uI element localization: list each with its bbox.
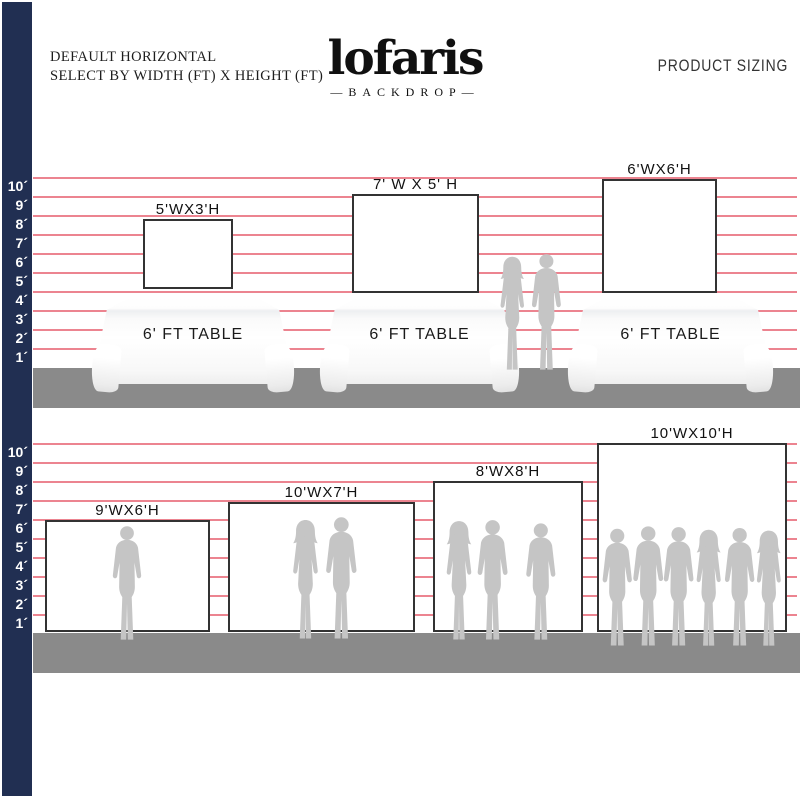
backdrop-size-label: 6'WX6'H xyxy=(602,161,717,178)
ruler-tick-label: 2´ xyxy=(2,329,28,347)
woman-silhouette xyxy=(293,520,318,639)
ruler-tick-label: 7´ xyxy=(2,500,28,518)
ruler-tick-label: 3´ xyxy=(2,576,28,594)
product-sizing-chart: DEFAULT HORIZONTAL SELECT BY WIDTH (FT) … xyxy=(0,0,800,800)
brand-logo-sub: —BACKDROP— xyxy=(295,85,515,100)
couple-silhouette xyxy=(280,515,364,641)
tablecloth-fold xyxy=(264,343,296,393)
group-of-three-silhouette xyxy=(435,517,573,642)
tagline: DEFAULT HORIZONTAL SELECT BY WIDTH (FT) … xyxy=(50,48,323,86)
table-label: 6' FT TABLE xyxy=(95,326,291,344)
man-silhouette xyxy=(725,528,754,646)
ruler-tick-label: 3´ xyxy=(2,310,28,328)
table: 6' FT TABLE xyxy=(95,298,291,384)
tablecloth-fold xyxy=(743,343,775,393)
backdrop-7x5 xyxy=(352,194,479,293)
backdrop-size-label: 10'WX7'H xyxy=(228,484,415,501)
woman-silhouette xyxy=(697,530,721,646)
backdrop-size-label: 7' W X 5' H xyxy=(352,176,479,193)
brand-logo: lofaris —BACKDROP— xyxy=(295,34,515,100)
ruler-tick-label: 6´ xyxy=(2,253,28,271)
ruler-tick-label: 8´ xyxy=(2,481,28,499)
ruler-tick-label: 5´ xyxy=(2,538,28,556)
man-silhouette xyxy=(326,517,356,638)
backdrop-5x3 xyxy=(143,219,233,289)
woman-silhouette xyxy=(757,531,781,646)
group-of-six-silhouette xyxy=(597,524,787,648)
man-silhouette xyxy=(664,527,694,645)
ruler-bar xyxy=(2,2,32,796)
man-silhouette xyxy=(532,254,561,369)
ruler-tick-label: 8´ xyxy=(2,215,28,233)
man-silhouette xyxy=(633,526,663,645)
woman-silhouette xyxy=(501,257,524,370)
tablecloth-fold xyxy=(566,343,598,393)
ruler-tick-label: 9´ xyxy=(2,196,28,214)
tablecloth-fold xyxy=(318,343,350,393)
ruler-tick-label: 7´ xyxy=(2,234,28,252)
ruler-tick-label: 5´ xyxy=(2,272,28,290)
backdrop-size-label: 9'WX6'H xyxy=(45,502,210,519)
ruler-tick-label: 10´ xyxy=(2,443,28,461)
tagline-line1: DEFAULT HORIZONTAL xyxy=(50,48,323,67)
ruler-tick-label: 4´ xyxy=(2,557,28,575)
man-silhouette xyxy=(105,524,149,642)
man-silhouette xyxy=(478,520,508,639)
ruler-tick-label: 10´ xyxy=(2,177,28,195)
tagline-line2: SELECT BY WIDTH (FT) X HEIGHT (FT) xyxy=(50,67,323,86)
ruler-tick-label: 1´ xyxy=(2,348,28,366)
ruler-tick-label: 6´ xyxy=(2,519,28,537)
ruler-tick-label: 9´ xyxy=(2,462,28,480)
brand-logo-name: lofaris xyxy=(295,34,515,84)
backdrop-size-label: 8'WX8'H xyxy=(433,463,583,480)
man-silhouette xyxy=(603,529,632,646)
tablecloth-fold xyxy=(90,343,122,393)
backdrop-size-label: 5'WX3'H xyxy=(143,201,233,218)
woman-silhouette xyxy=(447,521,472,639)
ruler-tick-label: 4´ xyxy=(2,291,28,309)
ruler-tick-label: 2´ xyxy=(2,595,28,613)
man-silhouette xyxy=(526,523,555,639)
backdrop-6x6 xyxy=(602,179,717,293)
table: 6' FT TABLE xyxy=(571,298,770,384)
backdrop-size-label: 10'WX10'H xyxy=(597,425,787,442)
ruler-tick-label: 1´ xyxy=(2,614,28,632)
table-label: 6' FT TABLE xyxy=(571,326,770,344)
couple-silhouette xyxy=(488,252,568,372)
page-title: PRODUCT SIZING xyxy=(658,56,788,76)
